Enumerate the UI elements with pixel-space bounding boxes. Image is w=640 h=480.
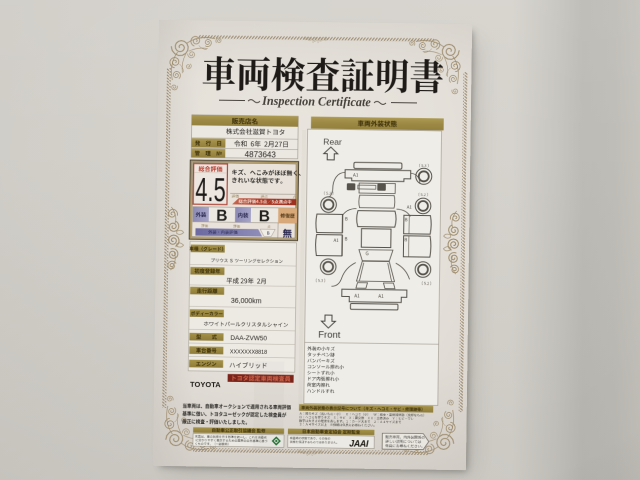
- svg-text:4873643: 4873643: [245, 150, 277, 159]
- svg-text:4.5: 4.5: [195, 171, 226, 208]
- svg-text:DAA-ZVW50: DAA-ZVW50: [230, 335, 267, 343]
- svg-text:XXXXXXX8818: XXXXXXX8818: [230, 349, 267, 356]
- svg-text:JAAI: JAAI: [349, 439, 369, 449]
- svg-text:TOYOTA: TOYOTA: [190, 380, 221, 389]
- svg-text:B: B: [259, 208, 270, 225]
- svg-text:Inspection Certificate: Inspection Certificate: [261, 94, 371, 110]
- svg-text:36,000km: 36,000km: [231, 298, 262, 305]
- svg-text:Rear: Rear: [323, 136, 342, 146]
- svg-text:B: B: [216, 208, 227, 225]
- svg-text:Front: Front: [318, 330, 341, 341]
